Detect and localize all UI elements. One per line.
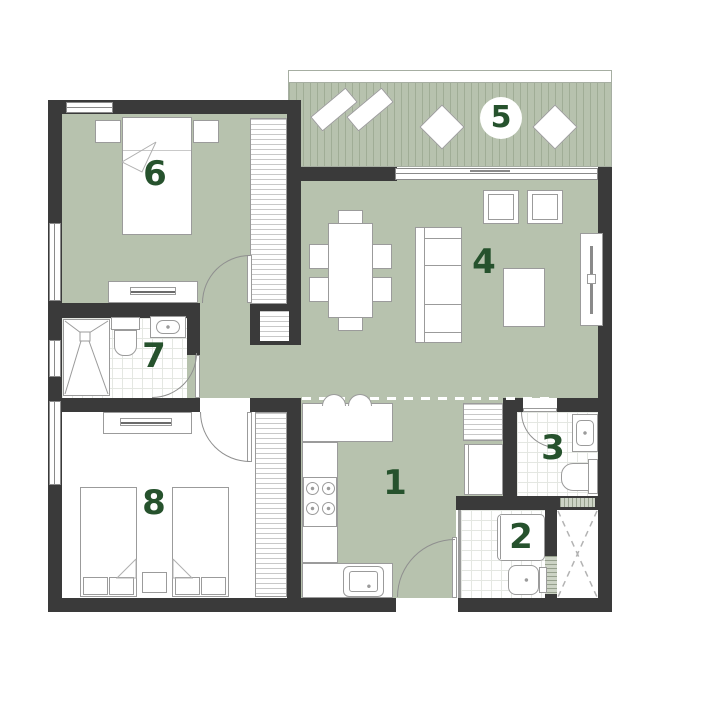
burner-icon bbox=[322, 502, 335, 515]
floor-cushion-inner bbox=[488, 194, 514, 220]
wall-bottom bbox=[48, 598, 612, 612]
room-label-living-room: 4 bbox=[469, 244, 499, 280]
room-label-wc-laundry: 2 bbox=[506, 519, 536, 555]
pillow bbox=[83, 577, 108, 595]
duct-closet bbox=[260, 311, 289, 341]
nightstand bbox=[95, 120, 121, 143]
washing-machine-door-line bbox=[500, 516, 501, 559]
balcony-railing bbox=[289, 71, 611, 83]
wardrobe-bedroom2 bbox=[255, 412, 287, 597]
wall-bedroom2-kitchen bbox=[287, 398, 301, 598]
sofa bbox=[415, 227, 462, 343]
blanket-fold-icon bbox=[116, 558, 138, 580]
floor-cushion-inner bbox=[532, 194, 558, 220]
coffee-table bbox=[503, 268, 545, 327]
balcony: 5 bbox=[288, 70, 612, 167]
sofa-cushion-line bbox=[424, 304, 461, 305]
room-label-shower-room: 7 bbox=[139, 338, 169, 374]
dresser-detail bbox=[130, 287, 176, 295]
washing-machine bbox=[463, 403, 503, 441]
sofa-cushion-line bbox=[424, 265, 461, 266]
wall-living-top bbox=[287, 167, 397, 181]
room-label-bedroom: 6 bbox=[140, 156, 170, 192]
blanket-fold-icon bbox=[171, 558, 193, 580]
fridge-door-line bbox=[468, 445, 469, 494]
window-bedroom-left bbox=[49, 223, 61, 301]
sofa-backrest-line bbox=[424, 228, 425, 342]
room-label-kitchen-hall: 1 bbox=[380, 465, 410, 501]
sofa-armrest-line bbox=[424, 238, 461, 239]
fridge bbox=[464, 444, 503, 495]
tv-mount bbox=[587, 274, 596, 284]
wall-bathroom-left bbox=[503, 398, 517, 500]
window-bedroom2-left bbox=[49, 401, 61, 485]
entrance-opening bbox=[396, 598, 458, 612]
sofa-armrest-line bbox=[424, 332, 461, 333]
kitchen-sink-basin bbox=[349, 571, 378, 592]
floor-plan: 5 bbox=[0, 0, 719, 719]
room-label-bedroom2: 8 bbox=[139, 485, 169, 521]
nightstand bbox=[193, 120, 219, 143]
shower-tray-icon bbox=[63, 319, 110, 396]
room-label-bathroom: 3 bbox=[538, 430, 568, 466]
dining-table bbox=[328, 223, 373, 318]
bathroom-sink-basin bbox=[576, 420, 594, 446]
burner-icon bbox=[322, 482, 335, 495]
window-bedroom-top bbox=[66, 102, 113, 113]
shaft-cross-icon bbox=[557, 510, 598, 598]
burner-icon bbox=[306, 502, 319, 515]
toilet-tank bbox=[539, 567, 547, 593]
bathroom-sink-basin bbox=[156, 320, 180, 334]
wall-bath-hall bbox=[187, 303, 200, 355]
burner-icon bbox=[306, 482, 319, 495]
pillow bbox=[201, 577, 226, 595]
kitchen-counter-top bbox=[302, 403, 393, 442]
door-arc-bedroom2 bbox=[200, 412, 250, 462]
wall-wc-partition bbox=[458, 510, 461, 598]
wall-bath-bedroom2 bbox=[48, 398, 200, 412]
toilet-bowl bbox=[114, 330, 137, 356]
wall-bathroom-top-b bbox=[557, 398, 598, 412]
nightstand bbox=[142, 572, 167, 593]
dresser-detail bbox=[120, 418, 172, 426]
toilet-bowl bbox=[508, 565, 539, 595]
toilet-tank bbox=[111, 317, 140, 330]
toilet-bowl bbox=[561, 463, 589, 491]
wardrobe-bedroom bbox=[250, 118, 287, 304]
window-shower-room bbox=[49, 340, 61, 377]
sliding-door-handle bbox=[470, 170, 510, 172]
room-label-balcony: 5 bbox=[480, 100, 522, 136]
toilet-tank bbox=[588, 459, 598, 494]
vent-shaft-top bbox=[560, 498, 595, 507]
